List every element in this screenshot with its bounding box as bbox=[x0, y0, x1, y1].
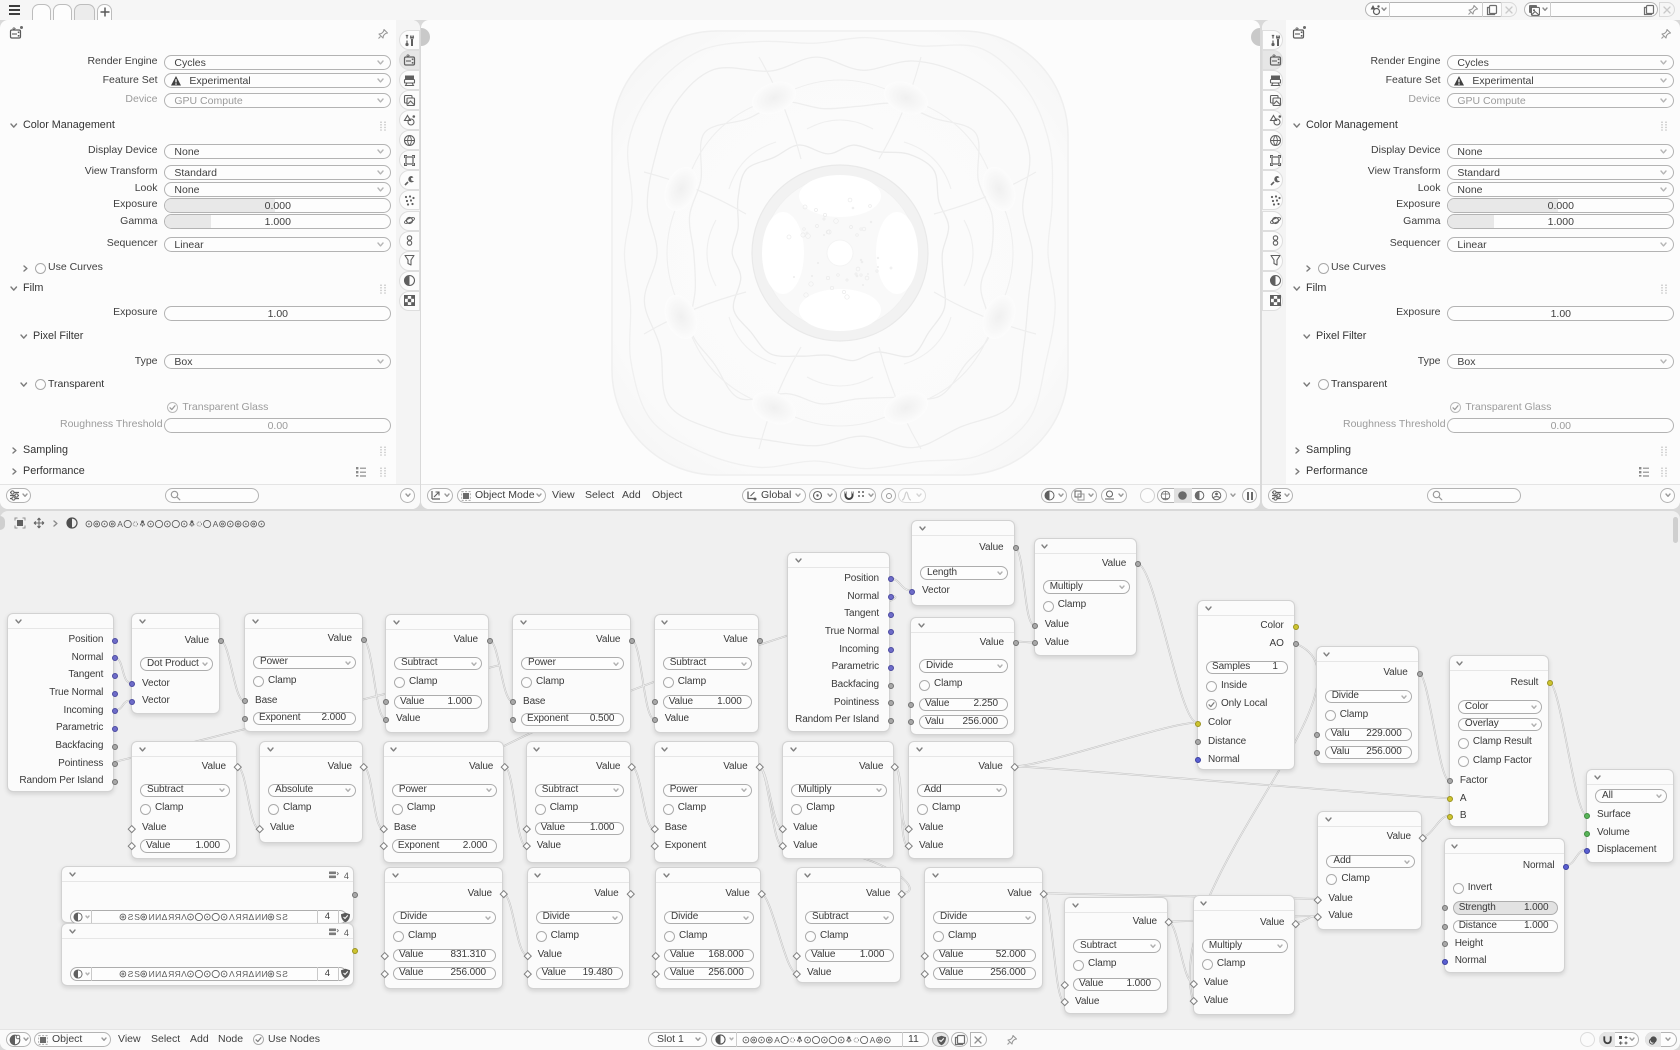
svg-text:Я: Я bbox=[168, 912, 174, 922]
svg-text:Δ: Δ bbox=[249, 912, 255, 922]
svg-text:Λ: Λ bbox=[181, 969, 187, 979]
svg-text:И: И bbox=[149, 969, 155, 979]
svg-text:Я: Я bbox=[175, 969, 181, 979]
svg-text:Я: Я bbox=[236, 969, 242, 979]
svg-text:A: A bbox=[117, 519, 123, 529]
svg-text:Δ: Δ bbox=[249, 969, 255, 979]
svg-text:Λ: Λ bbox=[229, 969, 235, 979]
svg-text:Я: Я bbox=[236, 912, 242, 922]
svg-text:И: И bbox=[155, 969, 161, 979]
svg-text:Я: Я bbox=[242, 969, 248, 979]
svg-text:Ƨ: Ƨ bbox=[128, 969, 134, 979]
svg-text:Я: Я bbox=[175, 912, 181, 922]
svg-text:Ƨ: Ƨ bbox=[283, 969, 289, 979]
svg-text:S: S bbox=[276, 912, 282, 922]
svg-text:И: И bbox=[149, 912, 155, 922]
svg-text:И: И bbox=[262, 912, 268, 922]
svg-text:Λ: Λ bbox=[181, 912, 187, 922]
svg-text:Ƨ: Ƨ bbox=[128, 912, 134, 922]
svg-text:Я: Я bbox=[242, 912, 248, 922]
svg-text:И: И bbox=[262, 969, 268, 979]
svg-text:Λ: Λ bbox=[229, 912, 235, 922]
svg-text:Δ: Δ bbox=[162, 912, 168, 922]
svg-text:S: S bbox=[135, 969, 141, 979]
svg-text:Δ: Δ bbox=[162, 969, 168, 979]
svg-text:S: S bbox=[135, 912, 141, 922]
svg-text:A: A bbox=[213, 519, 219, 529]
svg-text:Я: Я bbox=[168, 969, 174, 979]
svg-text:A: A bbox=[870, 1035, 876, 1045]
svg-text:S: S bbox=[276, 969, 282, 979]
svg-text:Ƨ: Ƨ bbox=[283, 912, 289, 922]
svg-text:A: A bbox=[774, 1035, 780, 1045]
svg-text:И: И bbox=[255, 969, 261, 979]
svg-text:И: И bbox=[255, 912, 261, 922]
svg-text:И: И bbox=[155, 912, 161, 922]
